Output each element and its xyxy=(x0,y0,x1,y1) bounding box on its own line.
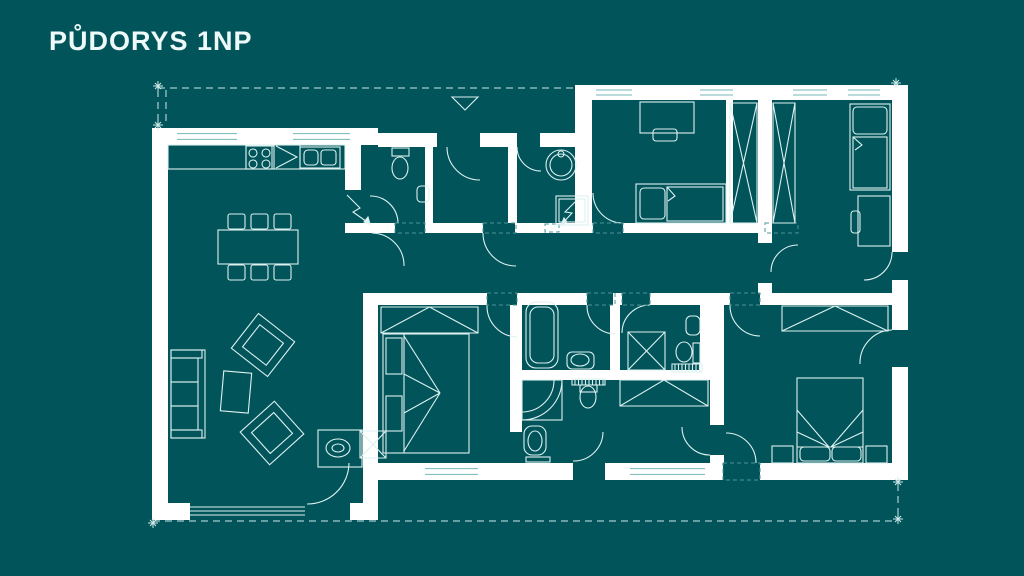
wall xyxy=(152,128,168,520)
washbasin xyxy=(686,316,700,335)
dimension-marker xyxy=(153,81,163,91)
door-arc xyxy=(370,196,398,223)
coffee-table xyxy=(220,371,251,413)
wall xyxy=(710,305,724,425)
toilet xyxy=(580,385,597,408)
opening-dash xyxy=(587,293,615,305)
wall xyxy=(363,293,487,305)
opening-dash xyxy=(395,223,425,233)
wardrobe-triangle xyxy=(782,306,888,331)
wall xyxy=(480,133,517,147)
washbasin xyxy=(524,426,550,462)
door-arc xyxy=(864,252,892,280)
toilet xyxy=(676,342,700,363)
single-bed xyxy=(636,184,726,223)
wall xyxy=(760,463,908,480)
wall xyxy=(758,85,772,243)
wall xyxy=(613,293,622,305)
door-arc xyxy=(573,432,603,461)
wall xyxy=(345,128,361,190)
door-arc xyxy=(622,305,650,333)
wall xyxy=(650,293,710,305)
wardrobe xyxy=(730,103,757,223)
door-arc xyxy=(593,193,623,223)
wardrobe-triangle xyxy=(620,380,708,406)
door-arc xyxy=(483,233,516,266)
wall xyxy=(623,223,758,233)
floor-plan-page: PŮDORYS 1NP xyxy=(0,0,1024,576)
wardrobe-triangle xyxy=(381,307,478,333)
door-arc xyxy=(517,147,541,171)
sink xyxy=(567,352,594,369)
door-arc xyxy=(771,245,798,272)
wall xyxy=(710,293,730,305)
wall xyxy=(508,147,517,223)
door-arc xyxy=(307,463,349,504)
dishwasher xyxy=(276,146,297,168)
wall xyxy=(425,147,433,223)
desk xyxy=(640,102,694,141)
door-arc xyxy=(860,330,892,364)
wall xyxy=(152,503,190,520)
door-arc xyxy=(730,305,760,336)
wall xyxy=(760,293,908,305)
dining-table xyxy=(218,230,298,264)
bathtub xyxy=(526,302,558,368)
wall xyxy=(363,293,378,503)
armchair xyxy=(231,314,294,377)
section-arrow xyxy=(347,195,370,224)
dining-chairs xyxy=(228,214,291,280)
opening-dash xyxy=(723,463,760,480)
entrance-marker xyxy=(452,97,478,110)
wall xyxy=(540,133,575,147)
wall xyxy=(425,223,483,233)
wall xyxy=(605,463,723,480)
double-bed xyxy=(383,334,469,453)
desk xyxy=(851,196,890,246)
wall xyxy=(350,503,378,520)
sliding-door xyxy=(190,507,305,515)
double-bed xyxy=(797,378,863,463)
sofa xyxy=(171,350,205,438)
toilet xyxy=(392,148,409,179)
wall xyxy=(510,305,522,432)
wall xyxy=(610,305,620,370)
opening-dash xyxy=(593,223,623,233)
door-arc xyxy=(372,233,404,266)
shower xyxy=(628,332,665,370)
door-arc xyxy=(682,427,710,455)
opening-dash xyxy=(487,293,517,305)
opening-dash xyxy=(483,223,516,233)
wall xyxy=(378,133,437,147)
armchair xyxy=(240,401,304,464)
dimension-marker xyxy=(893,514,903,524)
wall xyxy=(152,128,378,145)
washing-machine xyxy=(546,150,576,180)
wall xyxy=(575,85,592,233)
floor-plan-canvas xyxy=(0,0,1024,576)
nightstand xyxy=(866,446,887,463)
wall xyxy=(378,463,573,480)
shower-corner xyxy=(522,380,562,420)
opening-dash xyxy=(730,293,760,305)
wall xyxy=(575,85,908,100)
door-arc xyxy=(726,433,756,463)
wall xyxy=(710,455,724,463)
wall xyxy=(758,283,772,293)
nightstand xyxy=(772,446,793,463)
door-arc xyxy=(447,147,480,180)
wall xyxy=(892,85,908,252)
kitchen-sink xyxy=(300,147,340,168)
wardrobe xyxy=(773,103,795,223)
opening-dash xyxy=(622,293,650,305)
single-bed xyxy=(850,104,890,190)
stove xyxy=(246,146,274,169)
